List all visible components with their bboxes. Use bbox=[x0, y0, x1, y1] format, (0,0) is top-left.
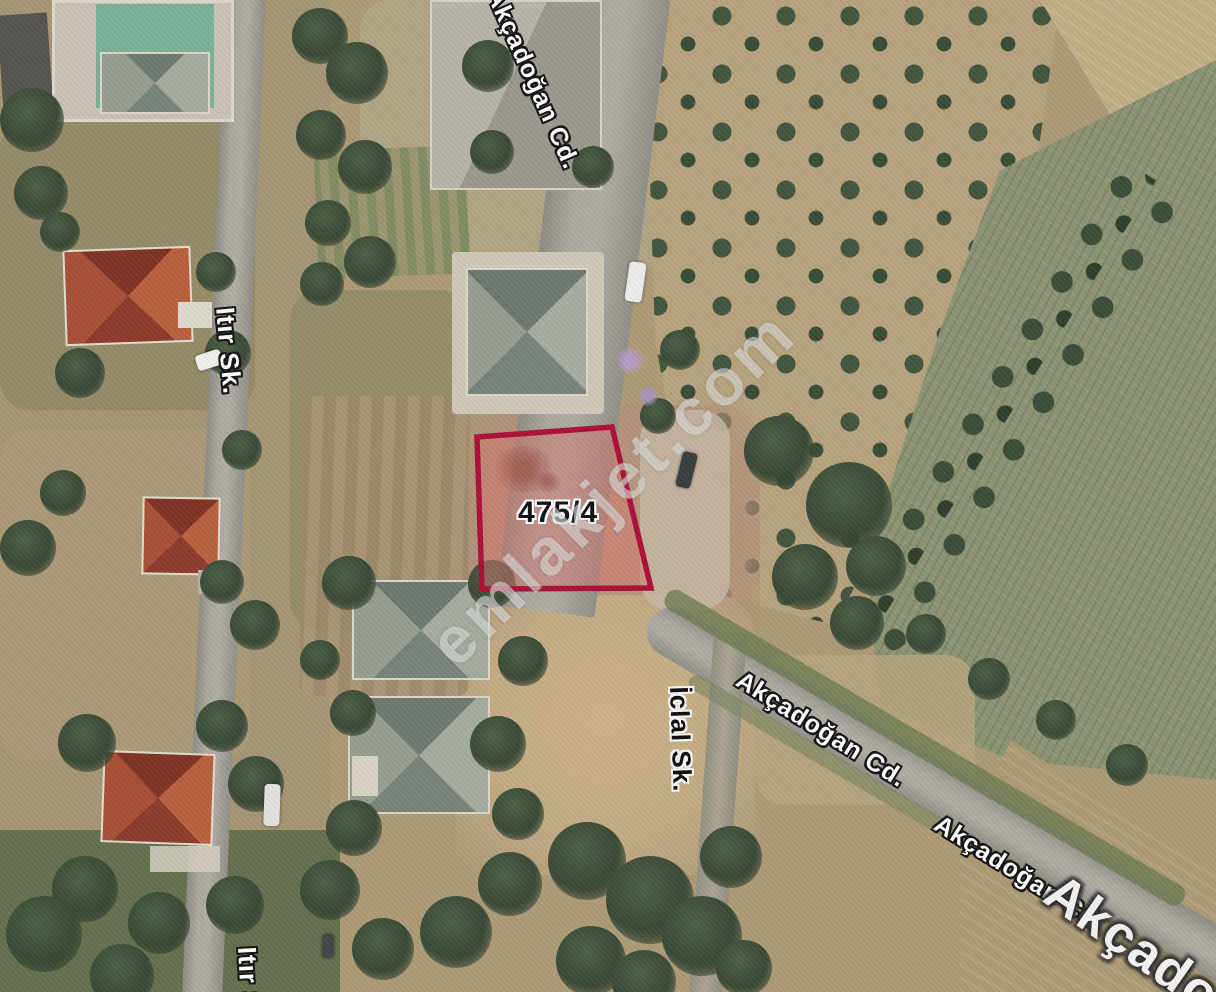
tree bbox=[40, 212, 80, 252]
patio bbox=[150, 846, 220, 872]
tree bbox=[305, 200, 351, 246]
tree bbox=[772, 544, 838, 610]
tree bbox=[296, 110, 346, 160]
compound-roof bbox=[100, 52, 210, 114]
shed bbox=[178, 302, 212, 328]
tree bbox=[0, 520, 56, 576]
tree bbox=[846, 536, 906, 596]
tree bbox=[6, 896, 82, 972]
tree bbox=[492, 788, 544, 840]
tree bbox=[0, 88, 64, 152]
tree bbox=[58, 714, 116, 772]
shed bbox=[352, 756, 378, 796]
vehicle-white-car bbox=[263, 784, 280, 827]
tree bbox=[716, 940, 772, 992]
tree bbox=[344, 236, 396, 288]
house-red-roof-bottom bbox=[100, 750, 215, 846]
tree bbox=[806, 462, 892, 548]
tree bbox=[128, 892, 190, 954]
road-label-itir-bottom: Itır Sk. bbox=[231, 946, 267, 992]
tree bbox=[55, 348, 105, 398]
tree bbox=[40, 470, 86, 516]
tree bbox=[200, 560, 244, 604]
satellite-map-image: Akçadoğan Cd. Itır Sk. Itır Sk. İclal Sk… bbox=[0, 0, 1216, 992]
tree bbox=[326, 800, 382, 856]
house-above-parcel bbox=[466, 268, 588, 396]
tree bbox=[498, 636, 548, 686]
house-red-roof bbox=[62, 246, 193, 346]
road-label-iclal: İclal Sk. bbox=[663, 686, 698, 793]
tree bbox=[470, 130, 514, 174]
tree bbox=[1106, 744, 1148, 786]
tree bbox=[222, 430, 262, 470]
tree bbox=[230, 600, 280, 650]
tree bbox=[700, 826, 762, 888]
vehicle-dark-small bbox=[322, 934, 334, 958]
tree bbox=[322, 556, 376, 610]
tree bbox=[196, 700, 248, 752]
tree bbox=[338, 140, 392, 194]
tree bbox=[420, 896, 492, 968]
tree bbox=[478, 852, 542, 916]
flowering-tree bbox=[616, 348, 644, 374]
tree bbox=[300, 262, 344, 306]
tree bbox=[206, 876, 264, 934]
tree bbox=[470, 716, 526, 772]
tree bbox=[968, 658, 1010, 700]
tree bbox=[196, 252, 236, 292]
tree bbox=[326, 42, 388, 104]
tree bbox=[744, 416, 814, 486]
tree bbox=[300, 640, 340, 680]
tree bbox=[906, 614, 946, 654]
tree bbox=[330, 690, 376, 736]
tree bbox=[1036, 700, 1076, 740]
tree bbox=[300, 860, 360, 920]
tree bbox=[352, 918, 414, 980]
tree bbox=[830, 596, 884, 650]
